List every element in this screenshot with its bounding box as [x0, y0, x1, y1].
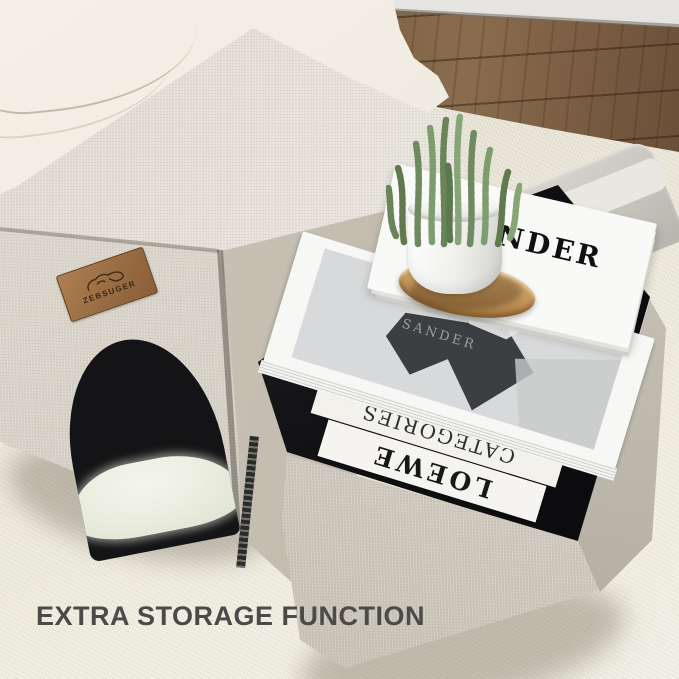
caption-text: EXTRA STORAGE FUNCTION [36, 601, 425, 632]
succulent-plant [386, 106, 522, 248]
product-photo-scene: ZEBSUGER Glacé Maren Rebel CATEGORIES LO… [0, 0, 679, 679]
pet-cushion [65, 443, 241, 548]
